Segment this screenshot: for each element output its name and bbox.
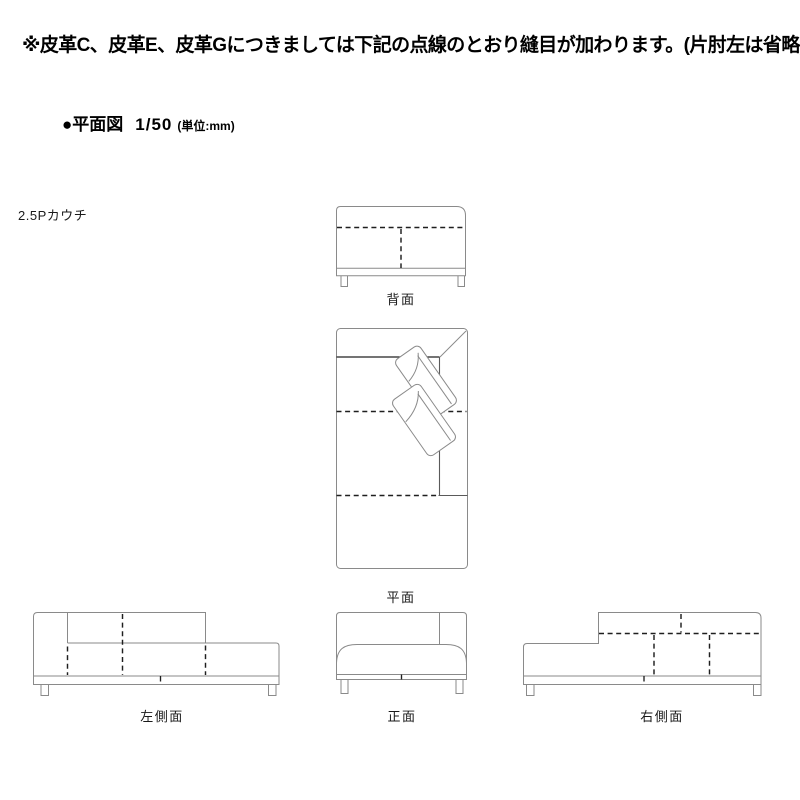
product-label: 2.5Pカウチ bbox=[18, 205, 87, 224]
right-side-view-label: 右側面 bbox=[592, 706, 732, 725]
heading-title: 平面図 bbox=[72, 115, 123, 134]
front-view-drawing bbox=[332, 605, 472, 705]
plan-view-drawing bbox=[330, 324, 475, 574]
left-side-view-label: 左側面 bbox=[92, 706, 232, 725]
bullet-icon: ● bbox=[62, 115, 72, 134]
front-view-label: 正面 bbox=[332, 706, 472, 725]
spec-sheet-page: ※皮革C、皮革E、皮革Gにつきましては下記の点線のとおり縫目が加わります。(片肘… bbox=[0, 0, 800, 800]
seam-note-text: ※皮革C、皮革E、皮革Gにつきましては下記の点線のとおり縫目が加わります。(片肘… bbox=[22, 30, 786, 57]
heading-unit: (単位:mm) bbox=[177, 119, 234, 133]
right-side-view-drawing bbox=[518, 605, 768, 705]
left-side-view-drawing bbox=[28, 605, 288, 705]
plan-view-label: 平面 bbox=[331, 587, 471, 606]
back-view-drawing bbox=[330, 200, 475, 300]
plan-drawing-heading: ●平面図1/50(単位:mm) bbox=[62, 110, 235, 135]
back-view-label: 背面 bbox=[331, 289, 471, 308]
heading-scale: 1/50 bbox=[135, 115, 172, 134]
